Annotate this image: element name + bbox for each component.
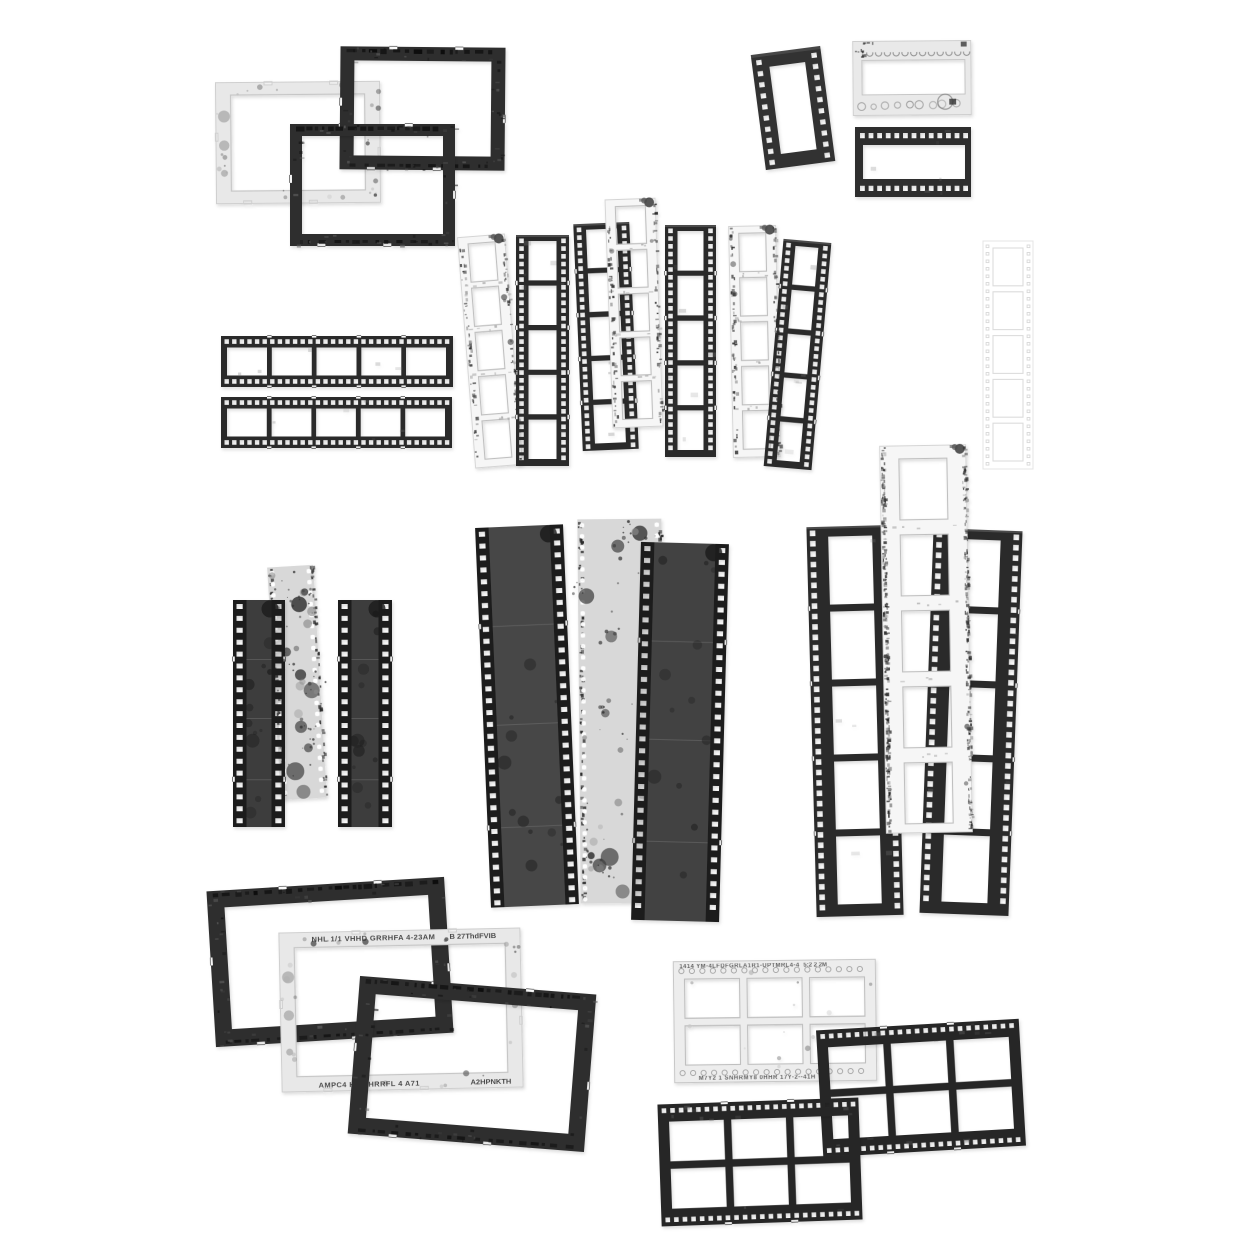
svg-text:5:2 2 2M: 5:2 2 2M bbox=[803, 962, 827, 968]
svg-text:B 27ThdFVIB: B 27ThdFVIB bbox=[449, 931, 496, 941]
svg-text:A2HPNKTH: A2HPNKTH bbox=[470, 1077, 511, 1087]
